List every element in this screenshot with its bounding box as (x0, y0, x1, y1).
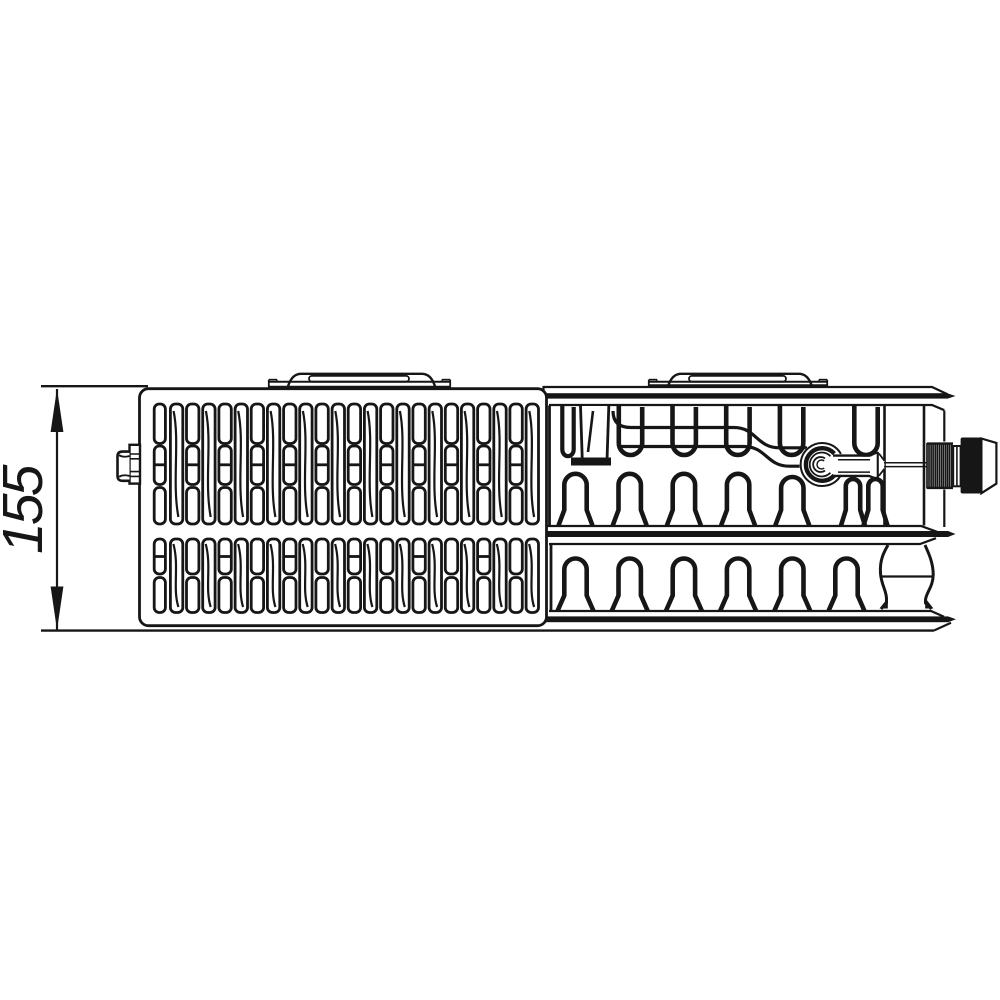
svg-text:155: 155 (0, 464, 55, 554)
